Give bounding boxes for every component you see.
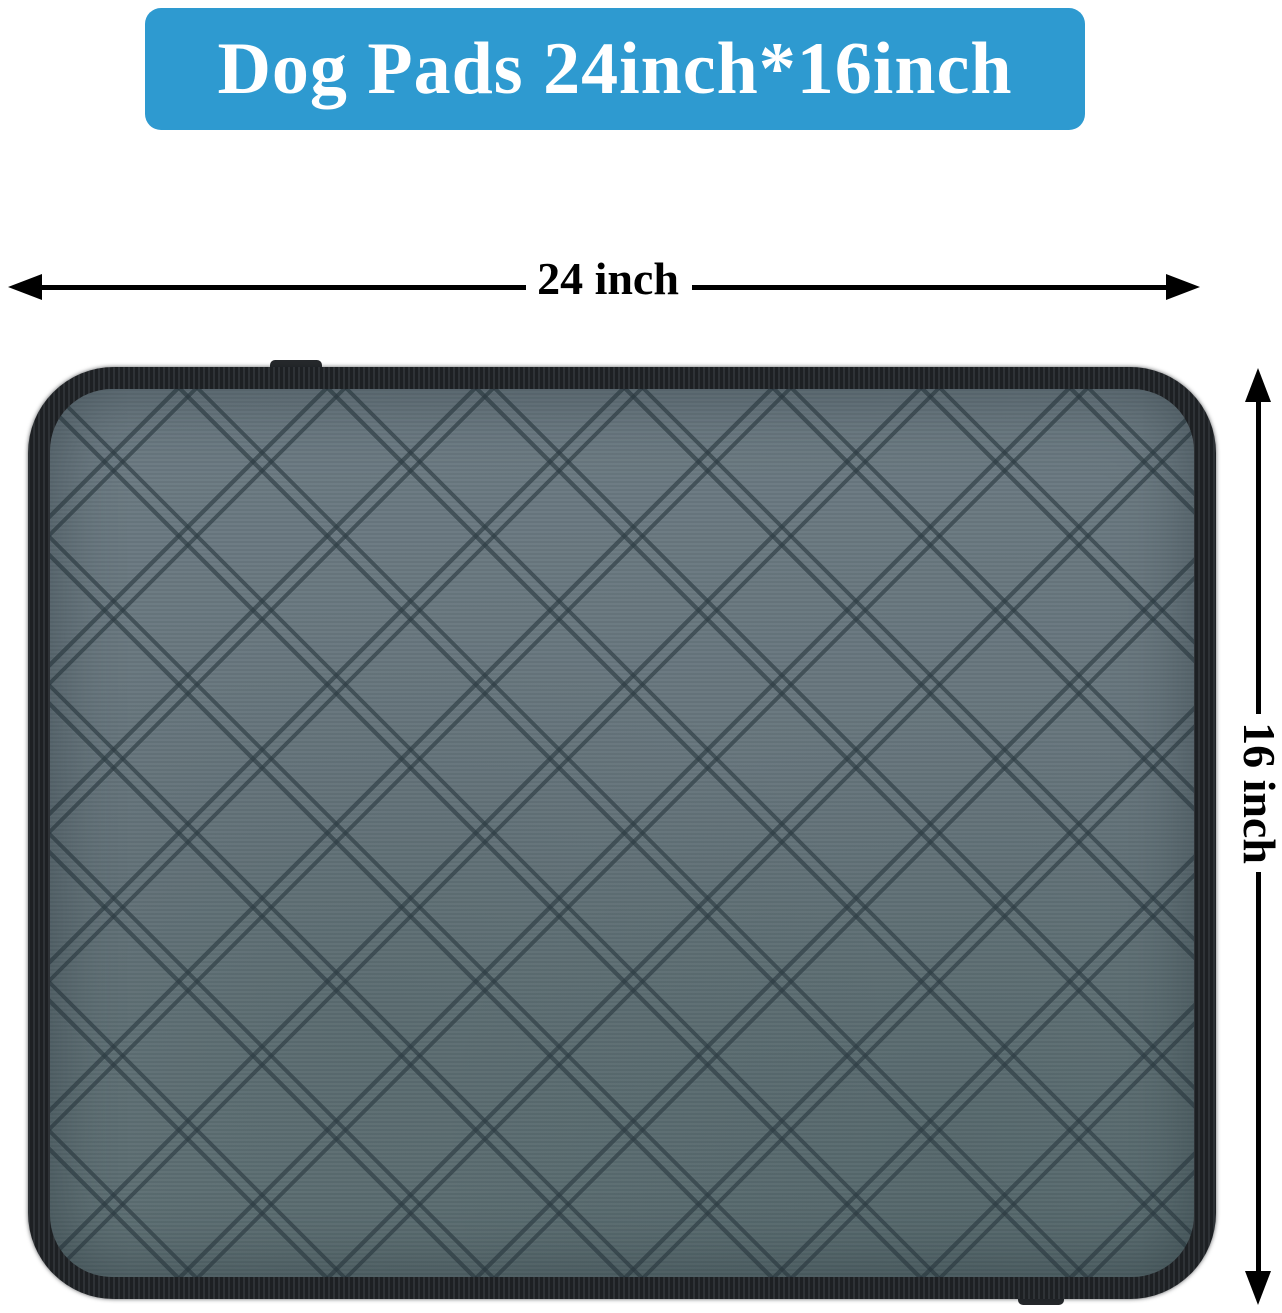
pad-binding	[28, 367, 1216, 1299]
title-banner-label: Dog Pads 24inch*16inch	[217, 27, 1012, 112]
arrow-up-icon	[1245, 368, 1271, 402]
width-dimension-line-right	[692, 285, 1170, 290]
product-image: Dog Pads 24inch*16inch 24 inch 16 inch	[0, 0, 1282, 1313]
pad-fabric	[50, 389, 1194, 1277]
width-dimension-label: 24 inch	[520, 256, 696, 302]
height-dimension-label: 16 inch	[1234, 713, 1282, 873]
title-banner: Dog Pads 24inch*16inch	[145, 8, 1085, 130]
height-dimension-line-bottom	[1256, 872, 1261, 1272]
arrow-down-icon	[1245, 1271, 1271, 1305]
arrow-right-icon	[1166, 274, 1200, 300]
height-dimension-line-top	[1256, 398, 1261, 714]
width-dimension-line-left	[36, 285, 526, 290]
